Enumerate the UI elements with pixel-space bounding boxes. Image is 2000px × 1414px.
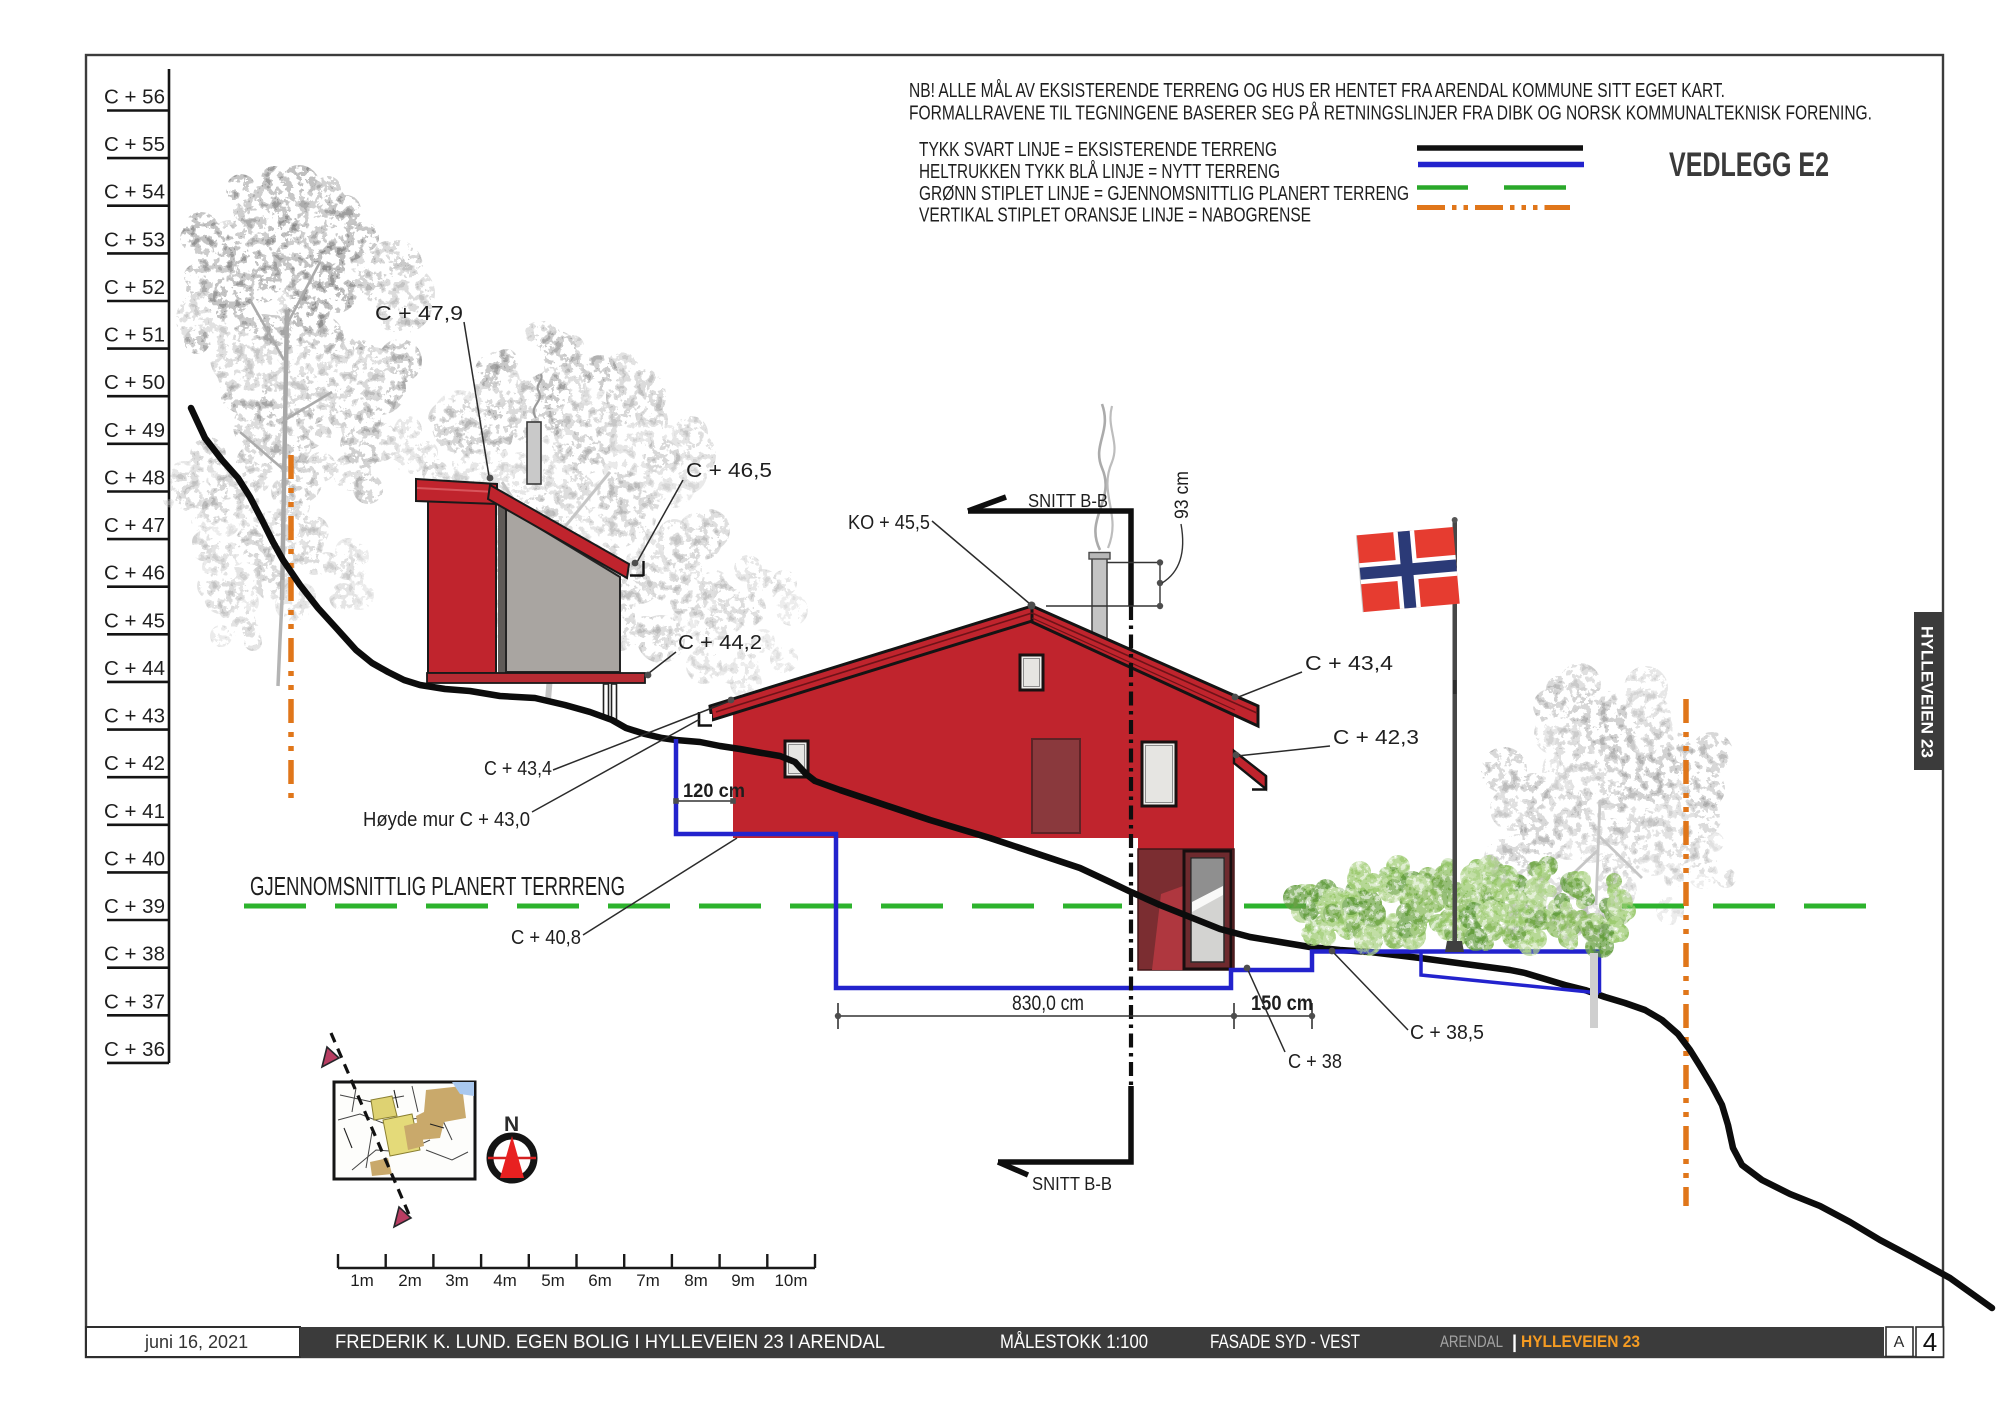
svg-text:N: N xyxy=(504,1113,519,1136)
svg-text:6m: 6m xyxy=(588,1271,612,1290)
svg-text:C + 36: C + 36 xyxy=(104,1039,165,1061)
svg-text:C + 37: C + 37 xyxy=(104,991,165,1013)
svg-text:9m: 9m xyxy=(731,1271,755,1290)
svg-text:ARENDAL: ARENDAL xyxy=(1440,1332,1503,1351)
svg-text:GJENNOMSNITTLIG PLANERT TERRRE: GJENNOMSNITTLIG PLANERT TERRRENG xyxy=(250,871,625,901)
svg-text:NB! ALLE MÅL AV EKSISTERENDE T: NB! ALLE MÅL AV EKSISTERENDE TERRENG OG … xyxy=(909,79,1725,102)
svg-text:C + 47: C + 47 xyxy=(104,515,165,537)
svg-text:C + 41: C + 41 xyxy=(104,801,165,823)
svg-text:7m: 7m xyxy=(636,1271,660,1290)
svg-text:VEDLEGG E2: VEDLEGG E2 xyxy=(1669,146,1829,184)
svg-text:3m: 3m xyxy=(445,1271,469,1290)
svg-text:VERTIKAL STIPLET ORANSJE LINJE: VERTIKAL STIPLET ORANSJE LINJE = NABOGRE… xyxy=(919,205,1311,227)
svg-text:C + 46: C + 46 xyxy=(104,563,165,585)
svg-text:C + 43: C + 43 xyxy=(104,706,165,728)
svg-text:1m: 1m xyxy=(350,1271,374,1290)
svg-text:C + 44,2: C + 44,2 xyxy=(678,632,762,654)
svg-text:C + 51: C + 51 xyxy=(104,325,165,347)
svg-text:HELTRUKKEN TYKK BLÅ LINJE = NY: HELTRUKKEN TYKK BLÅ LINJE = NYTT TERRENG xyxy=(919,160,1280,183)
svg-text:120 cm: 120 cm xyxy=(683,781,745,802)
svg-text:8m: 8m xyxy=(684,1271,708,1290)
svg-text:C + 55: C + 55 xyxy=(104,134,165,156)
svg-text:C + 44: C + 44 xyxy=(104,658,165,680)
svg-text:C + 38: C + 38 xyxy=(1288,1051,1342,1073)
svg-text:5m: 5m xyxy=(541,1271,565,1290)
svg-text:A: A xyxy=(1894,1334,1905,1351)
svg-text:MÅLESTOKK 1:100: MÅLESTOKK 1:100 xyxy=(1000,1332,1148,1353)
svg-text:GRØNN STIPLET LINJE = GJENNOMS: GRØNN STIPLET LINJE = GJENNOMSNITTLIG PL… xyxy=(919,183,1409,205)
svg-text:C + 53: C + 53 xyxy=(104,229,165,251)
svg-text:SNITT B-B: SNITT B-B xyxy=(1028,491,1108,511)
svg-text:Høyde mur C + 43,0: Høyde mur C + 43,0 xyxy=(363,809,530,831)
svg-text:C + 45: C + 45 xyxy=(104,610,165,632)
svg-text:10m: 10m xyxy=(774,1271,807,1290)
svg-text:C + 46,5: C + 46,5 xyxy=(686,460,772,482)
svg-text:FORMALLRAVENE TIL TEGNINGENE B: FORMALLRAVENE TIL TEGNINGENE BASERER SEG… xyxy=(909,102,1872,125)
svg-text:juni 16, 2021: juni 16, 2021 xyxy=(144,1332,248,1352)
svg-text:TYKK SVART LINJE = EKSISTEREND: TYKK SVART LINJE = EKSISTERENDE TERRENG xyxy=(919,139,1277,161)
svg-text:HYLLEVEIEN 23: HYLLEVEIEN 23 xyxy=(1918,626,1937,758)
svg-text:C + 43,4: C + 43,4 xyxy=(484,758,552,780)
svg-text:C + 42,3: C + 42,3 xyxy=(1333,727,1419,749)
svg-text:150 cm: 150 cm xyxy=(1251,992,1313,1015)
svg-text:C + 40: C + 40 xyxy=(104,848,165,870)
svg-text:C + 39: C + 39 xyxy=(104,896,165,918)
svg-text:C + 42: C + 42 xyxy=(104,753,165,775)
svg-text:|: | xyxy=(1512,1332,1517,1352)
svg-text:C + 43,4: C + 43,4 xyxy=(1305,653,1393,675)
svg-text:HYLLEVEIEN 23: HYLLEVEIEN 23 xyxy=(1521,1332,1640,1351)
svg-text:C + 54: C + 54 xyxy=(104,182,165,204)
svg-text:C + 56: C + 56 xyxy=(104,87,165,109)
svg-text:830,0 cm: 830,0 cm xyxy=(1012,992,1084,1015)
svg-text:SNITT B-B: SNITT B-B xyxy=(1032,1174,1112,1194)
svg-text:KO + 45,5: KO + 45,5 xyxy=(848,512,930,534)
svg-text:C + 52: C + 52 xyxy=(104,277,165,299)
svg-text:C + 48: C + 48 xyxy=(104,468,165,490)
svg-text:4: 4 xyxy=(1923,1327,1937,1357)
svg-text:FASADE SYD - VEST: FASADE SYD - VEST xyxy=(1210,1332,1360,1353)
svg-text:C + 47,9: C + 47,9 xyxy=(375,303,463,325)
svg-text:C + 38,5: C + 38,5 xyxy=(1410,1022,1484,1044)
svg-text:4m: 4m xyxy=(493,1271,517,1290)
svg-text:93 cm: 93 cm xyxy=(1172,471,1193,519)
svg-text:C + 50: C + 50 xyxy=(104,372,165,394)
svg-text:FREDERIK K. LUND. EGEN BOLIG I: FREDERIK K. LUND. EGEN BOLIG I HYLLEVEIE… xyxy=(335,1332,885,1353)
svg-text:C + 49: C + 49 xyxy=(104,420,165,442)
svg-text:C + 40,8: C + 40,8 xyxy=(511,927,581,949)
svg-text:C + 38: C + 38 xyxy=(104,944,165,966)
svg-text:2m: 2m xyxy=(398,1271,422,1290)
